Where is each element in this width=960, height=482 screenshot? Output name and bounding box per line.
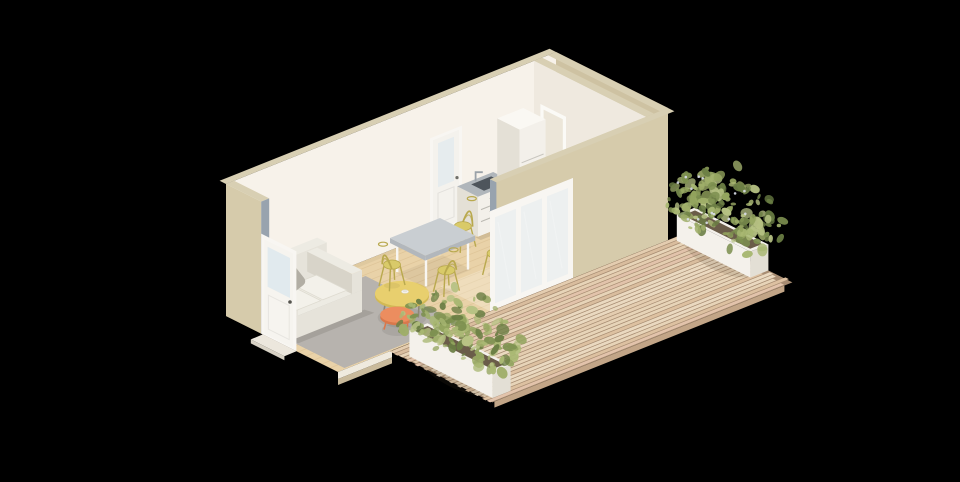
nesting-side-table (380, 307, 414, 336)
sliding-panel-glass-1 (495, 209, 516, 303)
scene-svg (0, 0, 960, 482)
sliding-panel-glass-3 (547, 188, 568, 282)
isometric-house-render (0, 0, 960, 482)
sliding-panel-glass-2 (521, 198, 542, 292)
cup (401, 290, 408, 294)
